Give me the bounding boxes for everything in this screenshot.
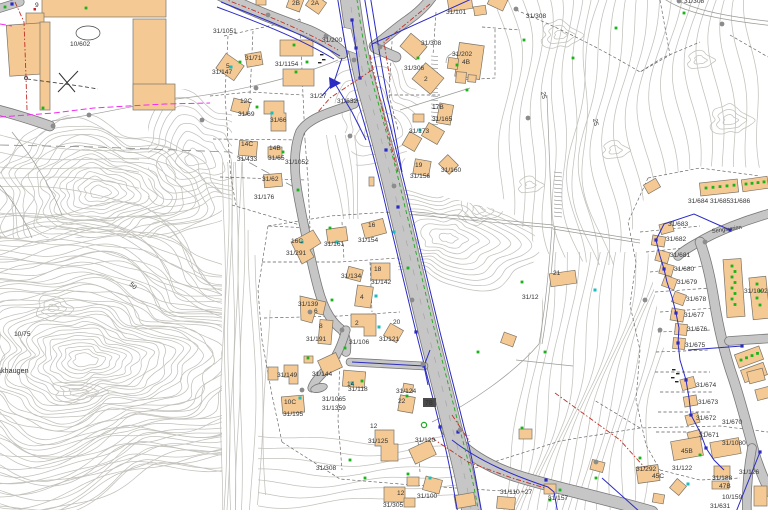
svg-text:21: 21 [553, 270, 561, 277]
svg-text:78: 78 [425, 400, 433, 407]
svg-text:31/291: 31/291 [286, 250, 307, 257]
svg-text:18: 18 [374, 266, 382, 273]
svg-text:10/159: 10/159 [722, 494, 743, 501]
svg-text:31/1065: 31/1065 [322, 396, 346, 403]
svg-text:45B: 45B [681, 448, 693, 455]
svg-text:31/292: 31/292 [636, 466, 657, 473]
svg-text:+27: +27 [521, 489, 533, 496]
svg-text:31/118: 31/118 [348, 386, 368, 393]
svg-text:22: 22 [398, 398, 406, 405]
svg-text:31/680: 31/680 [674, 266, 695, 273]
svg-text:31/677: 31/677 [684, 312, 705, 319]
svg-text:31/188: 31/188 [712, 475, 733, 482]
svg-text:10C: 10C [284, 399, 296, 406]
svg-text:2: 2 [424, 76, 428, 83]
svg-text:31/676: 31/676 [687, 326, 708, 333]
svg-text:4: 4 [360, 294, 364, 301]
svg-text:31/672: 31/672 [696, 415, 717, 422]
svg-text:31/154: 31/154 [358, 237, 379, 244]
svg-text:31/195: 31/195 [283, 411, 304, 418]
svg-text:6: 6 [314, 308, 318, 315]
svg-text:31/683: 31/683 [668, 221, 689, 228]
svg-text:31/308: 31/308 [316, 465, 337, 472]
svg-text:10/75: 10/75 [14, 331, 31, 338]
svg-text:31/126: 31/126 [739, 469, 760, 476]
svg-text:31/100: 31/100 [417, 493, 438, 500]
svg-text:31/686: 31/686 [730, 198, 751, 205]
svg-text:31/675: 31/675 [685, 342, 706, 349]
svg-text:31/125: 31/125 [368, 438, 389, 445]
svg-text:31/1051: 31/1051 [213, 28, 237, 35]
svg-text:31/308: 31/308 [421, 40, 442, 47]
svg-text:31/106: 31/106 [349, 339, 370, 346]
svg-text:31/305: 31/305 [383, 502, 404, 509]
svg-text:31/1052: 31/1052 [285, 159, 309, 166]
svg-text:31/306: 31/306 [404, 65, 425, 72]
svg-text:31/176: 31/176 [254, 194, 275, 201]
svg-text:31/142: 31/142 [371, 279, 392, 286]
svg-text:31/191: 31/191 [306, 336, 327, 343]
svg-text:31/69: 31/69 [238, 111, 255, 118]
svg-text:31/679: 31/679 [677, 279, 698, 286]
svg-text:31/121: 31/121 [379, 336, 400, 343]
svg-text:31/682: 31/682 [666, 236, 687, 243]
svg-text:31/120: 31/120 [415, 437, 436, 444]
svg-text:17B: 17B [432, 104, 444, 111]
svg-text:31/122: 31/122 [672, 465, 693, 472]
svg-text:31/66: 31/66 [270, 117, 287, 124]
svg-text:31/156: 31/156 [410, 173, 431, 180]
svg-text:2: 2 [355, 320, 359, 327]
svg-text:31/147: 31/147 [212, 69, 233, 76]
svg-text:31/110: 31/110 [500, 489, 520, 496]
svg-text:31/27: 31/27 [310, 93, 327, 100]
svg-text:31/101: 31/101 [446, 9, 467, 16]
svg-text:31/165: 31/165 [432, 116, 453, 123]
svg-text:31/157: 31/157 [548, 495, 569, 502]
svg-text:31/144: 31/144 [312, 371, 333, 378]
svg-text:31/12: 31/12 [522, 294, 539, 301]
svg-text:19: 19 [415, 162, 423, 169]
svg-text:31/160: 31/160 [441, 167, 462, 174]
svg-text:31/685: 31/685 [710, 198, 731, 205]
svg-text:31/684: 31/684 [688, 198, 709, 205]
svg-text:31/673: 31/673 [698, 399, 719, 406]
svg-text:31/161: 31/161 [324, 241, 345, 248]
svg-text:10/602: 10/602 [70, 41, 91, 48]
svg-text:31/670: 31/670 [722, 419, 743, 426]
svg-text:31/631: 31/631 [710, 503, 731, 510]
svg-text:8: 8 [319, 323, 323, 330]
svg-text:31/678: 31/678 [686, 296, 707, 303]
svg-text:2B: 2B [292, 0, 301, 7]
svg-text:31/62: 31/62 [262, 176, 279, 183]
svg-text:åkhaugen: åkhaugen [0, 366, 29, 375]
svg-text:31/173: 31/173 [409, 128, 430, 135]
svg-text:2A: 2A [311, 0, 320, 7]
svg-text:12: 12 [397, 490, 405, 497]
svg-text:9: 9 [35, 2, 39, 9]
svg-text:31/681: 31/681 [670, 252, 691, 259]
svg-text:16: 16 [368, 222, 376, 229]
svg-text:14B: 14B [269, 145, 281, 152]
svg-text:20: 20 [393, 319, 401, 326]
svg-text:31/1080: 31/1080 [722, 440, 746, 447]
svg-text:31/308: 31/308 [526, 13, 547, 20]
svg-text:4B: 4B [462, 59, 471, 66]
svg-text:31/71: 31/71 [245, 55, 262, 62]
svg-text:31/200: 31/200 [322, 37, 343, 44]
svg-text:31/134: 31/134 [341, 273, 362, 280]
svg-text:31/65: 31/65 [268, 155, 285, 162]
svg-text:31/671: 31/671 [699, 432, 720, 439]
svg-text:12: 12 [370, 423, 378, 430]
svg-text:31/1359: 31/1359 [322, 405, 346, 412]
svg-text:31/632: 31/632 [337, 98, 358, 105]
svg-text:31/139: 31/139 [298, 301, 319, 308]
svg-text:45C: 45C [652, 473, 664, 480]
svg-text:31/149: 31/149 [277, 372, 298, 379]
svg-text:47B: 47B [719, 483, 731, 490]
svg-text:31/308: 31/308 [684, 0, 705, 5]
svg-text:16C: 16C [291, 238, 303, 245]
svg-text:31/124: 31/124 [396, 388, 417, 395]
svg-text:31/202: 31/202 [452, 51, 473, 58]
svg-text:31/674: 31/674 [696, 382, 717, 389]
svg-text:12C: 12C [240, 98, 252, 105]
svg-text:31/433: 31/433 [237, 156, 258, 163]
svg-text:14C: 14C [241, 141, 253, 148]
svg-text:31/1092: 31/1092 [744, 288, 768, 295]
svg-text:31/1154: 31/1154 [275, 61, 299, 68]
